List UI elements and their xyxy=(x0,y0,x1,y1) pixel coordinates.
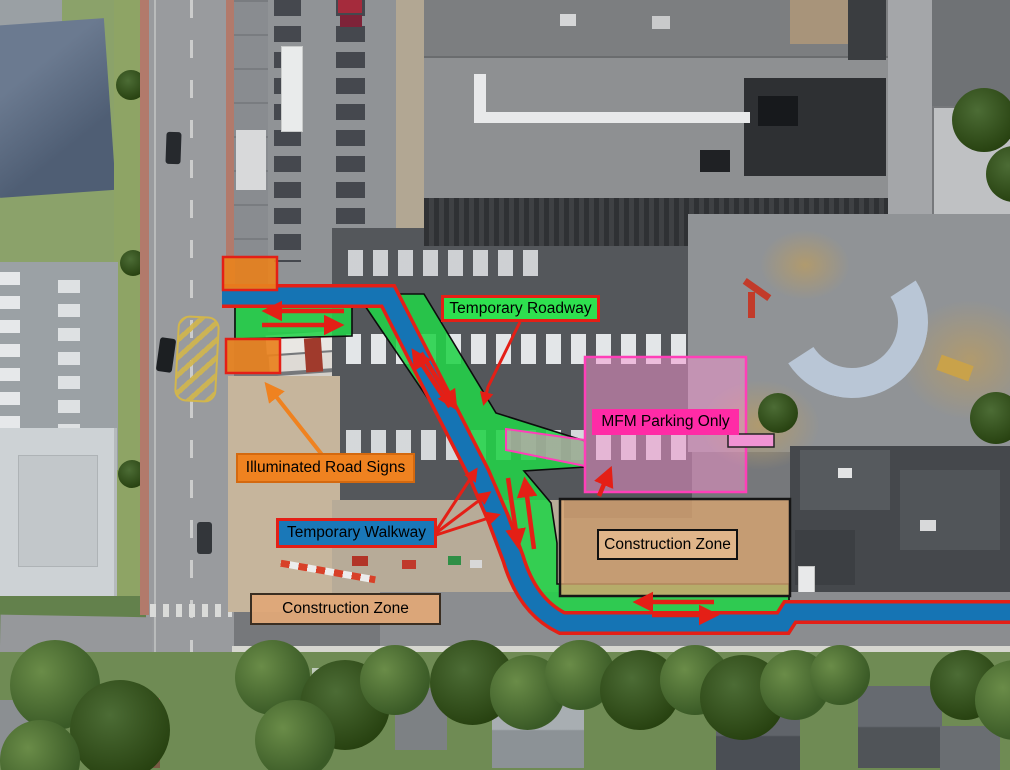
sign-label-pointer xyxy=(267,385,323,456)
illuminated-road-signs-label: Illuminated Road Signs xyxy=(236,453,415,483)
illuminated-signs-pointer xyxy=(267,385,323,456)
temporary-walkway-label: Temporary Walkway xyxy=(276,518,437,548)
construction-zone-label-right: Construction Zone xyxy=(597,529,738,560)
mfm-parking-label: MFM Parking Only xyxy=(592,409,739,435)
walkway-label-pointer xyxy=(436,470,476,531)
construction-zone-label-left: Construction Zone xyxy=(250,593,441,625)
mfm-parking-sign-small xyxy=(728,434,774,447)
roadway-label-pointer xyxy=(484,322,520,403)
illuminated-sign-box xyxy=(223,257,277,290)
temporary-roadway-label: Temporary Roadway xyxy=(441,295,600,322)
illuminated-sign-box xyxy=(226,339,280,373)
aerial-site-plan: Temporary Roadway MFM Parking Only Illum… xyxy=(0,0,1010,770)
annotation-overlay xyxy=(0,0,1010,770)
